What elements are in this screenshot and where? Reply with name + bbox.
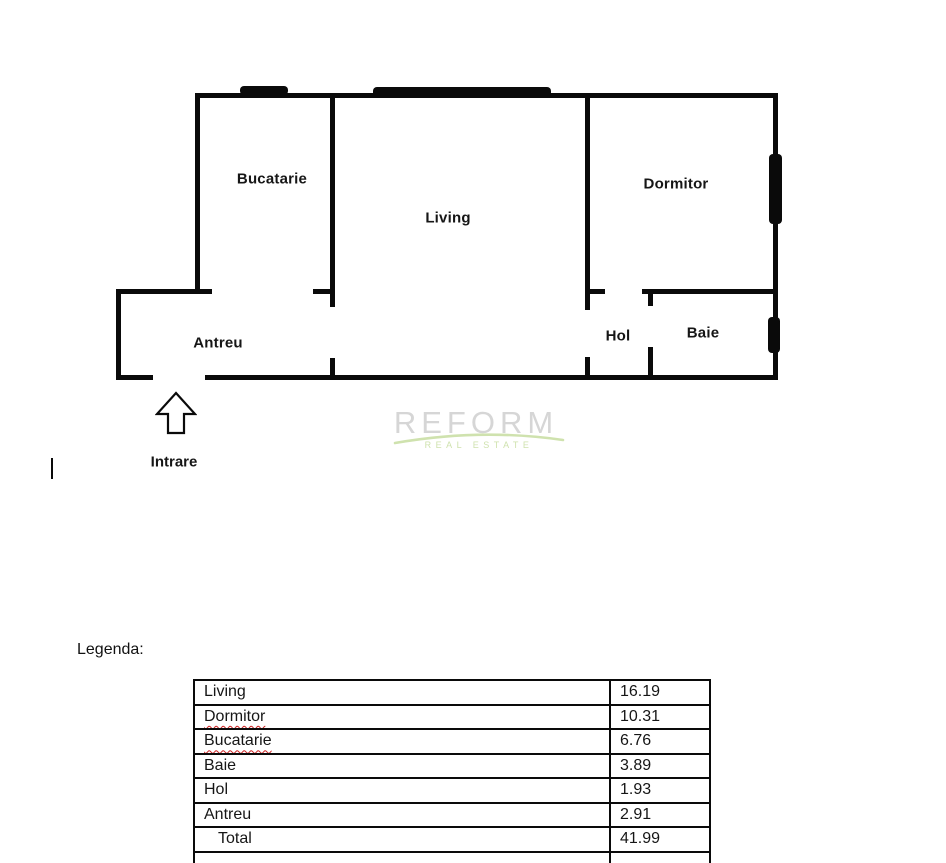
row-label: Bucatarie	[204, 732, 272, 750]
table-row-partial	[195, 853, 709, 863]
stray-mark	[51, 458, 53, 479]
row-value: 6.76	[611, 730, 709, 753]
row-value: 1.93	[611, 779, 709, 802]
entrance-arrow-icon	[155, 391, 197, 435]
wall-living-dormitor	[585, 93, 590, 310]
living-window	[373, 87, 551, 97]
wall-bucatarie-left	[195, 93, 200, 293]
room-label-antreu: Antreu	[193, 335, 243, 352]
wall-bucatarie-bottom-stub	[313, 289, 335, 294]
table-row-total: Total 41.99	[195, 828, 709, 853]
wall-antreu-top	[116, 289, 212, 294]
wall-bottom-main	[205, 375, 778, 380]
row-value: 16.19	[611, 681, 709, 704]
wall-bucatarie-living	[330, 93, 335, 307]
row-label: Baie	[204, 757, 236, 775]
wall-antreu-left	[116, 289, 121, 380]
room-label-hol: Hol	[606, 328, 631, 345]
row-label: Total	[218, 830, 252, 848]
row-value: 2.91	[611, 804, 709, 827]
watermark-tagline: REAL ESTATE	[425, 440, 534, 450]
table-row: Bucatarie 6.76	[195, 730, 709, 755]
row-value: 10.31	[611, 706, 709, 729]
wall-hol-baie-upper-stub	[648, 294, 653, 306]
wall-baie-top	[642, 289, 778, 294]
table-row: Baie 3.89	[195, 755, 709, 780]
legend-table: Living 16.19 Dormitor 10.31 Bucatarie 6.…	[193, 679, 711, 863]
table-row: Antreu 2.91	[195, 804, 709, 829]
room-label-dormitor: Dormitor	[644, 176, 709, 193]
legend-title: Legenda:	[77, 641, 144, 659]
dormitor-window	[769, 154, 782, 224]
row-label: Living	[204, 683, 246, 701]
table-row: Hol 1.93	[195, 779, 709, 804]
room-label-bucatarie: Bucatarie	[237, 171, 307, 188]
table-row: Dormitor 10.31	[195, 706, 709, 731]
wall-hol-top-stub	[585, 289, 605, 294]
row-label: Hol	[204, 781, 228, 799]
wall-bottom-left-segment	[116, 375, 153, 380]
room-label-baie: Baie	[687, 325, 720, 342]
table-row: Living 16.19	[195, 681, 709, 706]
entrance-label: Intrare	[151, 454, 198, 471]
row-value: 41.99	[611, 828, 709, 851]
room-label-living: Living	[425, 210, 470, 227]
baie-window	[768, 317, 780, 353]
row-label: Dormitor	[204, 708, 265, 726]
row-label: Antreu	[204, 806, 251, 824]
row-value: 3.89	[611, 755, 709, 778]
bucatarie-window	[240, 86, 288, 95]
